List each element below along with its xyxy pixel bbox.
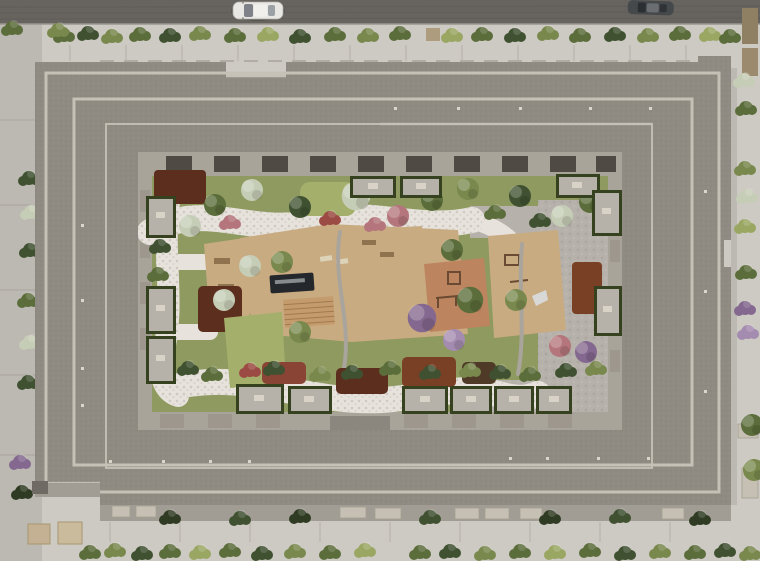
terrace-pod: [146, 196, 176, 238]
terrace-pod: [594, 286, 622, 336]
terrace-pod: [146, 336, 176, 384]
terrace-pod: [494, 386, 534, 414]
terrace-pod: [400, 176, 442, 198]
terrace-pod: [350, 176, 396, 198]
terrace-pod: [402, 386, 448, 414]
upper-seating-pad: [352, 226, 426, 268]
white-car: [231, 1, 285, 21]
terrace-pod: [592, 190, 622, 236]
courtyard-landscape: [146, 170, 622, 414]
utility-box: [32, 481, 48, 494]
top-right-planters: [742, 8, 758, 76]
terrace-pod: [146, 286, 176, 334]
scene-svg: [0, 0, 760, 561]
terrace-pod: [288, 386, 332, 414]
terrace-pod: [236, 384, 284, 414]
building-shadow-right: [731, 68, 737, 505]
terrace-pod: [450, 386, 492, 414]
tan-playground: [488, 230, 566, 338]
terrace-pod: [536, 386, 572, 414]
architectural-aerial-render: [0, 0, 760, 561]
hedge-planter-box: [426, 28, 440, 41]
dark-car: [628, 0, 674, 16]
inner-courtyard: [138, 152, 622, 430]
wood-deck: [283, 296, 335, 327]
